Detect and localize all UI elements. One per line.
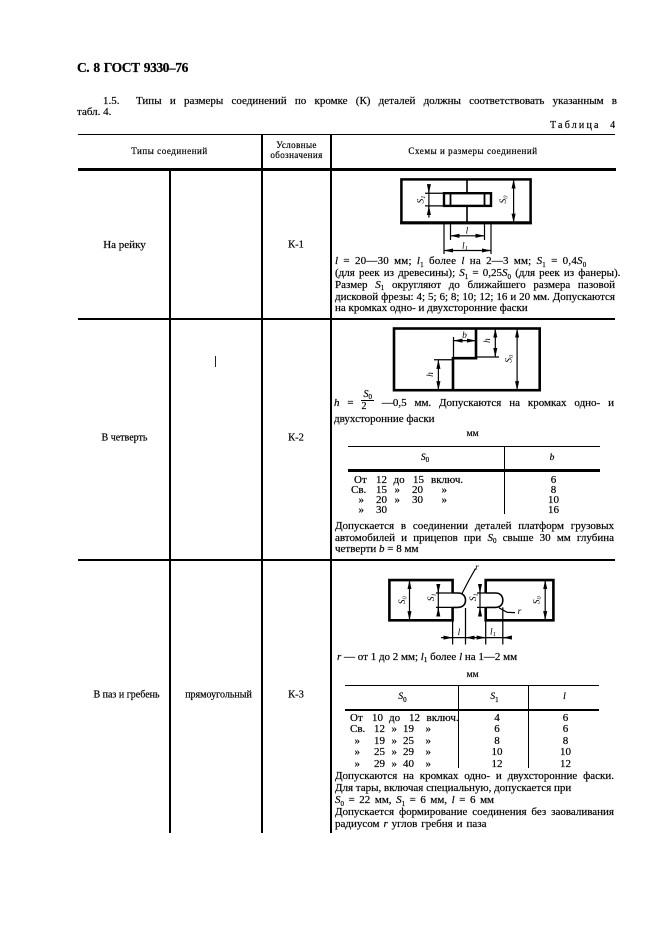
svg-text:r: r bbox=[518, 607, 522, 617]
svg-text:S0: S0 bbox=[499, 195, 510, 204]
svg-text:r: r bbox=[475, 563, 479, 573]
svg-text:S0: S0 bbox=[398, 595, 409, 604]
svg-text:l: l bbox=[458, 628, 461, 638]
svg-text:S0: S0 bbox=[533, 595, 544, 604]
svg-text:S1: S1 bbox=[416, 196, 427, 204]
svg-text:l1: l1 bbox=[462, 241, 468, 252]
svg-text:l: l bbox=[466, 226, 469, 236]
svg-text:h: h bbox=[483, 338, 493, 343]
svg-text:b: b bbox=[462, 331, 467, 341]
svg-text:S1: S1 bbox=[427, 593, 438, 601]
svg-text:h: h bbox=[426, 372, 436, 377]
svg-text:S1: S1 bbox=[469, 593, 480, 601]
svg-text:l1: l1 bbox=[490, 627, 496, 638]
svg-text:S0: S0 bbox=[505, 354, 515, 363]
